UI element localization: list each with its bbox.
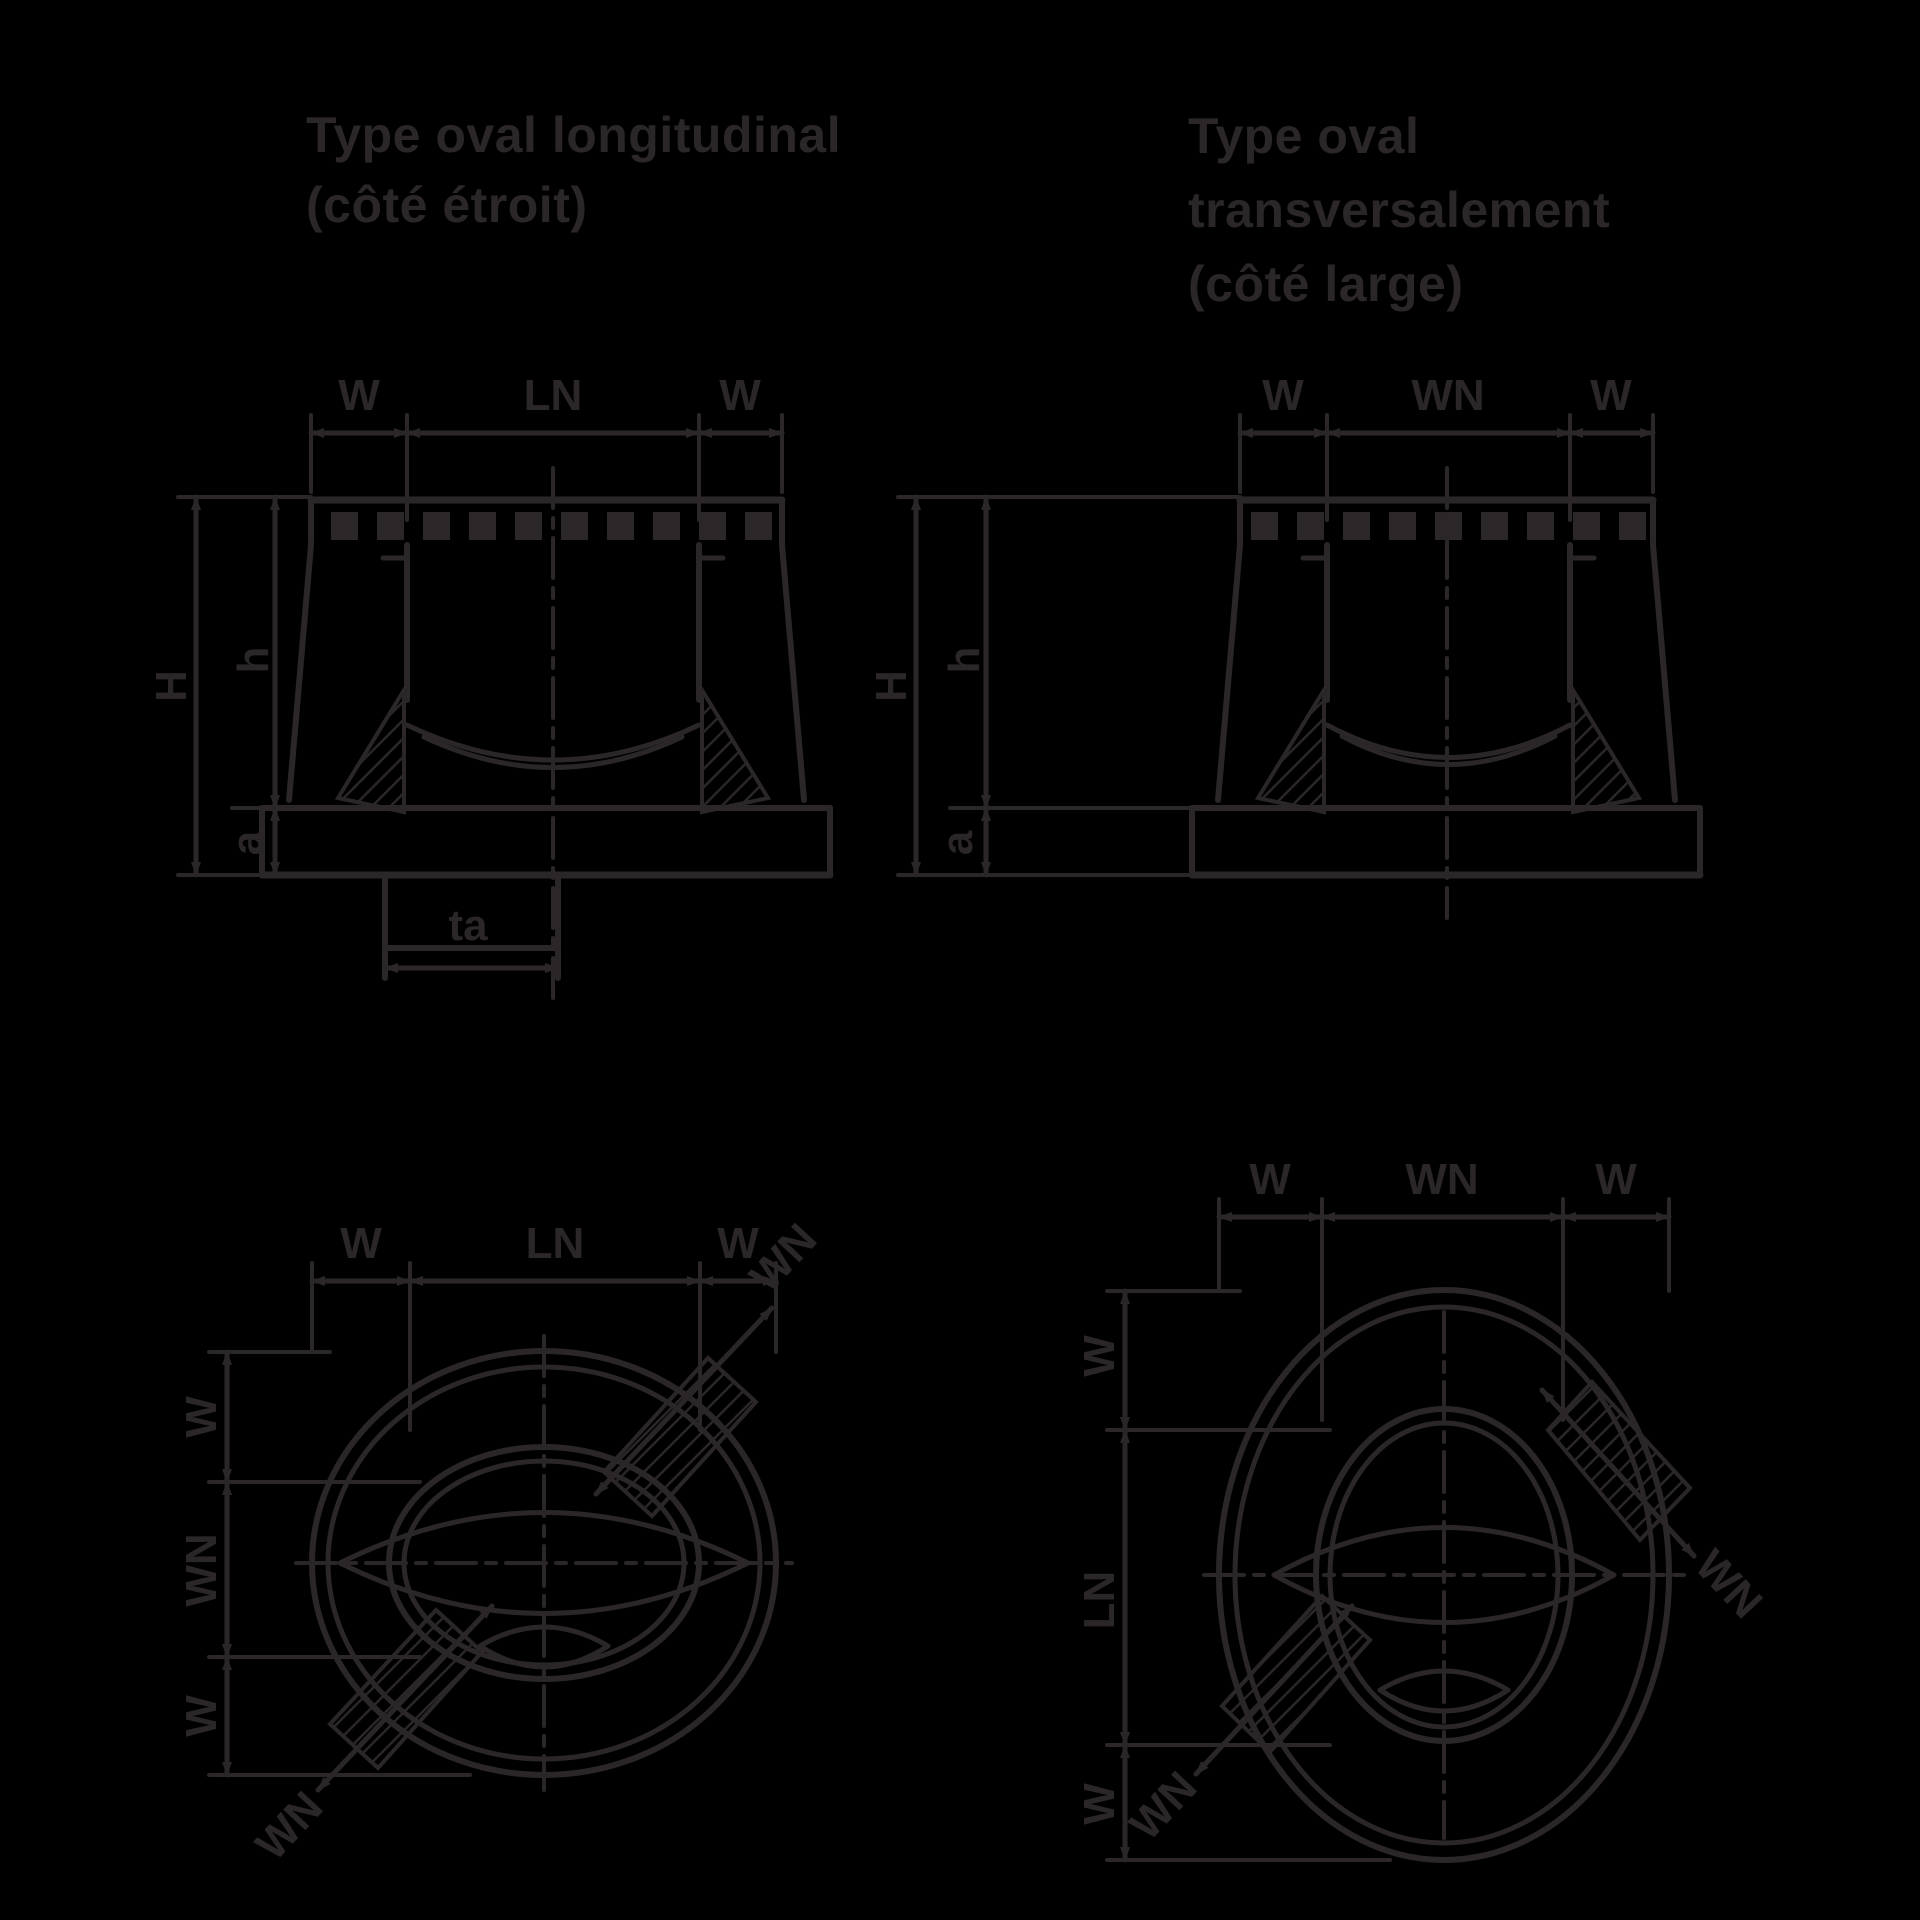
dim-label-w: W xyxy=(1590,371,1632,420)
dim-label-wn: WN xyxy=(1405,1155,1478,1204)
dim-label-wn-diagonal: WN xyxy=(1120,1763,1206,1850)
dim-label-wn: WN xyxy=(177,1533,226,1606)
dim-label-w: W xyxy=(1595,1155,1637,1204)
dim-label-w: W xyxy=(340,1219,382,1268)
title-left-line2: (côté étroit) xyxy=(306,177,588,233)
outer-wall xyxy=(1653,545,1675,800)
dim-label-a: a xyxy=(933,830,982,855)
dim-label-H: H xyxy=(147,670,196,702)
dim-label-w: W xyxy=(1075,1335,1124,1377)
dim-label-ln: LN xyxy=(526,1219,585,1268)
dim-label-w: W xyxy=(177,1396,226,1438)
title-right-line1: Type oval xyxy=(1188,108,1419,164)
technical-drawing: Type oval longitudinal (côté étroit) Typ… xyxy=(0,0,1920,1920)
dim-label-ta: ta xyxy=(448,901,488,950)
wing-hatched xyxy=(1258,690,1324,812)
title-left-line1: Type oval longitudinal xyxy=(306,107,841,163)
section-longitudinal-view: W LN W H h a xyxy=(147,371,830,998)
title-right: Type oval transversalement (côté large) xyxy=(1188,108,1610,312)
dim-label-w: W xyxy=(1075,1783,1124,1825)
grate-castellation xyxy=(311,512,782,542)
wing-hatched xyxy=(1573,690,1639,812)
dim-label-w: W xyxy=(177,1695,226,1737)
dim-label-w: W xyxy=(1262,371,1304,420)
dim-label-ln: LN xyxy=(524,371,583,420)
outer-wall xyxy=(782,545,804,800)
dim-label-h: h xyxy=(940,647,989,674)
wing-hatched xyxy=(338,690,404,812)
dim-label-wn-diagonal: WN xyxy=(1686,1541,1772,1628)
dim-label-wn-diagonal: WN xyxy=(246,1783,332,1870)
dim-label-w: W xyxy=(338,371,380,420)
outer-wall xyxy=(289,545,311,800)
dim-label-w: W xyxy=(719,371,761,420)
section-transversal-view: W WN W H h a xyxy=(867,371,1700,918)
wing-hatched xyxy=(702,690,768,812)
plan-longitudinal-view: W LN W W WN W WN WN xyxy=(177,1215,826,1870)
dim-label-wn: WN xyxy=(1411,371,1484,420)
dim-label-ln: LN xyxy=(1075,1571,1124,1630)
wing-hatched xyxy=(1222,1596,1370,1752)
wing-hatched xyxy=(1548,1382,1690,1540)
dim-label-h: h xyxy=(229,647,278,674)
dim-label-H: H xyxy=(867,670,916,702)
title-left: Type oval longitudinal (côté étroit) xyxy=(306,107,841,233)
outer-wall xyxy=(1218,545,1240,800)
drawing-canvas: Type oval longitudinal (côté étroit) Typ… xyxy=(0,0,1920,1920)
dim-label-w: W xyxy=(1249,1155,1291,1204)
title-right-line3: (côté large) xyxy=(1188,256,1464,312)
plan-transversal-view: W WN W W LN W WN WN xyxy=(1075,1155,1772,1860)
title-right-line2: transversalement xyxy=(1188,182,1610,238)
